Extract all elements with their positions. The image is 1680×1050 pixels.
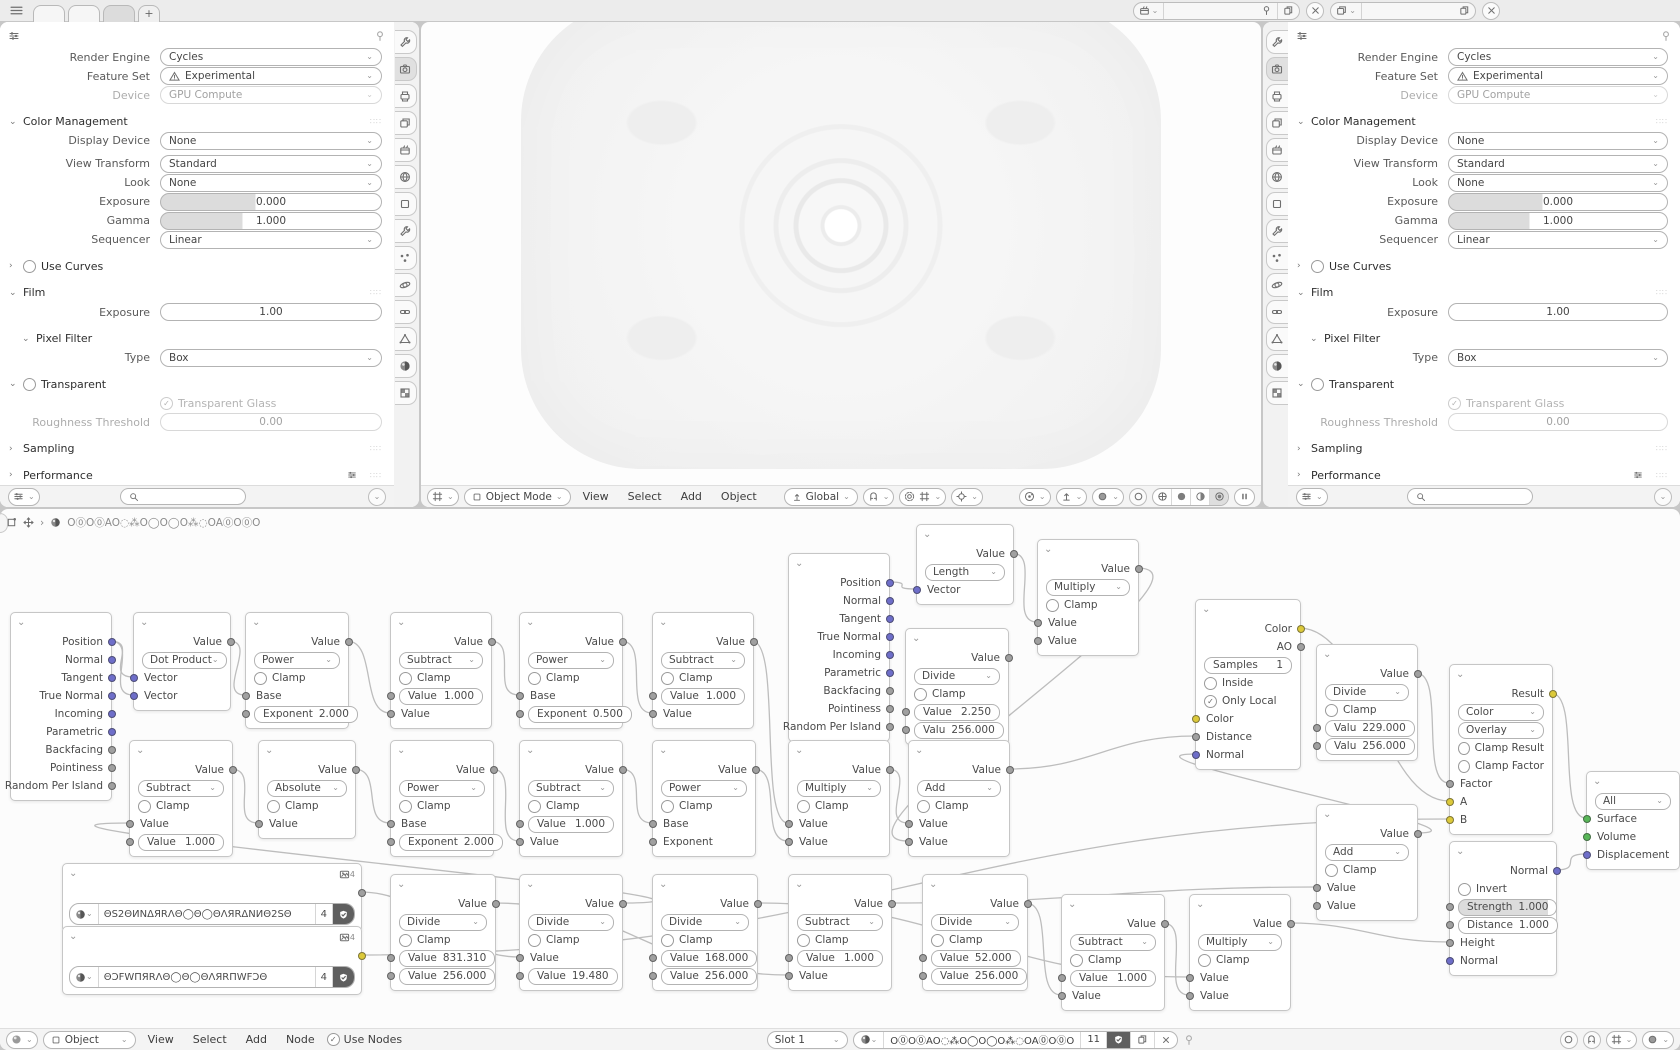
drag-grip[interactable]: ∷∷ [1656,444,1668,453]
input-socket[interactable] [130,674,138,682]
select-display-device[interactable]: None⌄ [160,132,382,150]
value-field[interactable]: Valu256.000 [1325,738,1415,755]
section-checkbox[interactable] [1311,260,1324,273]
pin-icon[interactable] [374,30,386,42]
xray-toggle[interactable] [1129,488,1147,506]
input-socket[interactable] [1034,619,1042,627]
output-socket[interactable] [619,766,627,774]
output-socket[interactable] [108,782,116,790]
properties-tab-particles[interactable] [1266,246,1288,270]
properties-tab-material[interactable] [1266,354,1288,378]
node-abs[interactable]: ⌄ValueAbsolute⌄ClampValue [258,740,356,839]
output-socket[interactable] [886,766,894,774]
checkbox-clamp[interactable] [254,672,267,685]
pin-icon[interactable] [1660,30,1672,42]
properties-tab-world[interactable] [1266,165,1288,189]
input-socket[interactable] [1186,992,1194,1000]
pivot-select[interactable]: ⌄ [951,488,983,506]
input-socket[interactable] [902,708,910,716]
checkbox-clamp[interactable] [1070,954,1083,967]
shading-material[interactable] [1191,489,1210,505]
node-addD[interactable]: ⌄ValueAdd⌄ClampValueValue [1316,804,1418,921]
input-socket[interactable] [1446,921,1454,929]
checkbox-clamp[interactable] [399,672,412,685]
workspace-tab[interactable] [103,5,135,22]
output-socket[interactable] [886,723,894,731]
input-socket[interactable] [1583,833,1591,841]
section-checkbox[interactable] [1311,378,1324,391]
menu-add[interactable]: Add [239,1033,274,1046]
select-view-transform[interactable]: Standard⌄ [1448,155,1668,173]
node-bump[interactable]: ⌄NormalInvertStrength1.000Distance1.000H… [1449,841,1557,976]
node-header[interactable]: ⌄ [1190,895,1290,915]
node-dot[interactable]: ⌄ValueDot Product⌄VectorVector [133,612,231,711]
menu-object[interactable]: Object [714,490,764,503]
node-header[interactable]: ⌄ [906,629,1008,649]
properties-tab-material[interactable] [395,354,417,378]
value-field[interactable]: Value256.000 [661,968,757,985]
node-header[interactable]: ⌄ [1038,540,1138,560]
value-field[interactable]: Value831.310 [399,950,495,967]
copy-icon[interactable] [1278,3,1299,19]
section-sampling[interactable]: ›Sampling∷∷ [1288,439,1680,459]
properties-tab-object[interactable] [1266,192,1288,216]
output-socket[interactable] [1024,900,1032,908]
output-socket[interactable] [886,597,894,605]
slider-exposure[interactable]: 0.000 [1448,193,1668,211]
output-socket[interactable] [352,766,360,774]
operation-select[interactable]: Multiply⌄ [797,780,881,797]
output-socket[interactable] [1006,766,1014,774]
operation-select[interactable]: Subtract⌄ [1070,934,1156,951]
node-header[interactable]: ⌄ [1450,842,1556,862]
image-users-count[interactable]: 4 [316,967,333,987]
checkbox-clamp[interactable] [931,934,944,947]
node-divT[interactable]: ⌄ValueDivide⌄ClampValue2.250Valu256.000 [905,628,1009,745]
value-field[interactable]: Value256.000 [931,968,1027,985]
properties-tab-constraints[interactable] [395,300,417,324]
output-socket[interactable] [619,900,627,908]
properties-tab-render[interactable] [395,57,417,81]
properties-tab-output[interactable] [395,84,417,108]
add-workspace-button[interactable]: + [138,5,160,22]
operation-select[interactable]: Length⌄ [925,564,1005,581]
operation-select[interactable]: Absolute⌄ [267,780,347,797]
input-socket[interactable] [785,820,793,828]
material-users-count[interactable]: 11 [1081,1032,1107,1048]
operation-select[interactable]: Power⌄ [254,652,340,669]
output-socket[interactable] [1297,625,1305,633]
input-socket[interactable] [242,710,250,718]
checkbox-clamp[interactable] [138,800,151,813]
input-socket[interactable] [1446,903,1454,911]
node-header[interactable]: ⌄ [789,741,889,761]
checkbox-clamp[interactable] [1325,704,1338,717]
input-socket[interactable] [1446,816,1454,824]
input-socket[interactable] [126,838,134,846]
node-subC[interactable]: ⌄ValueSubtract⌄ClampValue1.000Value [788,874,892,991]
node-header[interactable]: ⌄4 [63,864,361,884]
checkbox-clamp[interactable] [797,800,810,813]
node-geo1[interactable]: ⌄PositionNormalTangentTrue NormalIncomin… [10,612,112,801]
close-icon[interactable] [1482,2,1500,20]
input-socket[interactable] [919,972,927,980]
operation-select[interactable]: Add⌄ [917,780,1001,797]
input-socket[interactable] [126,820,134,828]
input-socket[interactable] [1058,992,1066,1000]
properties-tab-render[interactable] [1266,57,1288,81]
fake-user-shield-icon[interactable] [1107,1032,1131,1048]
input-socket[interactable] [905,820,913,828]
node-header[interactable]: ⌄ [391,741,493,761]
section-transparent[interactable]: ⌄Transparent [1288,374,1680,394]
image-name[interactable]: ΘƆϜWПЯRΛΘ◯Θ◯ΘΛЯRПWϜƆΘ [99,967,316,987]
properties-editor-icon[interactable] [1296,30,1308,42]
pin-icon[interactable] [1261,5,1272,16]
editor-type-button[interactable]: ⌄ [427,488,459,506]
input-socket[interactable] [1583,851,1591,859]
output-socket[interactable] [750,638,758,646]
operation-select[interactable]: Subtract⌄ [661,652,745,669]
orientation-select[interactable]: Global⌄ [784,488,858,506]
node-header[interactable]: ⌄ [246,613,348,633]
node-header[interactable]: ⌄ [1317,645,1417,665]
output-socket[interactable] [492,900,500,908]
operation-select[interactable]: Add⌄ [1325,844,1409,861]
select-look[interactable]: None⌄ [1448,174,1668,192]
checkbox-clamp[interactable] [661,800,674,813]
section-pixel-filter[interactable]: ⌄Pixel Filter [1288,329,1680,349]
input-socket[interactable] [516,954,524,962]
node-mix[interactable]: ⌄ResultColor⌄Overlay⌄Clamp ResultClamp F… [1449,664,1553,835]
value-field[interactable]: Exponent2.000 [254,706,358,723]
input-socket[interactable] [1186,974,1194,982]
number-field-roughness-threshold[interactable]: 0.00 [1448,413,1668,431]
checkbox-clamp[interactable] [528,672,541,685]
image-users-count[interactable]: 4 [316,904,333,924]
copy-icon[interactable] [1131,1032,1155,1048]
value-field[interactable]: Samples1 [1204,657,1292,674]
properties-tab-output[interactable] [1266,84,1288,108]
input-socket[interactable] [1313,724,1321,732]
input-socket[interactable] [1034,637,1042,645]
node-header[interactable]: ⌄ [520,741,622,761]
input-socket[interactable] [649,972,657,980]
editor-type-button[interactable]: ⌄ [6,1031,38,1049]
output-socket[interactable] [1010,550,1018,558]
input-socket[interactable] [1583,815,1591,823]
use-nodes-checkbox[interactable]: ✓Use Nodes [327,1033,403,1046]
menu-add[interactable]: Add [674,490,709,503]
input-socket[interactable] [387,838,395,846]
image-name[interactable]: ΘS2ΘИNΔЯRΛΘ◯Θ◯ΘΛЯRΔNИΘ2SΘ [99,904,316,924]
input-socket[interactable] [1313,884,1321,892]
checkbox-clamp[interactable] [1046,599,1059,612]
select-type[interactable]: Box⌄ [1448,349,1668,367]
node-header[interactable]: ⌄ [789,875,891,895]
overlays-dropdown[interactable]: ⌄ [1092,488,1124,506]
workspace-tab[interactable] [33,5,65,22]
operation-select[interactable]: Power⌄ [399,780,485,797]
drag-grip[interactable]: ∷∷ [370,444,382,453]
input-socket[interactable] [1058,974,1066,982]
copy-icon[interactable] [1459,5,1470,16]
select-render-engine[interactable]: Cycles⌄ [160,48,382,66]
properties-tab-scene[interactable] [1266,138,1288,162]
select-display-device[interactable]: None⌄ [1448,132,1668,150]
node-divC4[interactable]: ⌄ValueDivide⌄ClampValue52.000Value256.00… [922,874,1028,991]
select-view-transform[interactable]: Standard⌄ [160,155,382,173]
slider-gamma[interactable]: 1.000 [1448,212,1668,230]
slider-exposure[interactable]: 0.000 [160,193,382,211]
output-socket[interactable] [886,669,894,677]
slot-select[interactable]: Slot 1⌄ [767,1031,848,1049]
output-socket[interactable] [108,674,116,682]
output-socket[interactable] [108,764,116,772]
node-mulT[interactable]: ⌄ValueMultiply⌄ClampValueValue [1037,539,1139,656]
output-socket[interactable] [108,710,116,718]
node-header[interactable]: ⌄ [391,613,491,633]
checkbox-clamp-factor[interactable] [1458,760,1470,773]
output-socket[interactable] [1287,920,1295,928]
output-socket[interactable] [1005,654,1013,662]
node-mulB[interactable]: ⌄ValueMultiply⌄ClampValueValue [788,740,890,857]
section-use-curves[interactable]: ›Use Curves [1288,256,1680,276]
select-look[interactable]: None⌄ [160,174,382,192]
checkbox-clamp[interactable] [528,934,541,947]
node-divC1[interactable]: ⌄ValueDivide⌄ClampValue831.310Value256.0… [390,874,496,991]
operation-select[interactable]: Power⌄ [661,780,747,797]
node-header[interactable]: ⌄ [1450,665,1552,685]
properties-tab-particles[interactable] [395,246,417,270]
shader-node-editor[interactable]: ⌄PositionNormalTangentTrue NormalIncomin… [0,509,1680,1050]
select-render-engine[interactable]: Cycles⌄ [1448,48,1668,66]
operation-select[interactable]: All⌄ [1595,793,1671,810]
operation-select[interactable]: Overlay⌄ [1458,722,1544,739]
number-field-exposure[interactable]: 1.00 [1448,303,1668,321]
input-socket[interactable] [1446,939,1454,947]
input-socket[interactable] [649,838,657,846]
snap-toggle-ghost[interactable] [1560,1031,1578,1049]
node-mulC[interactable]: ⌄ValueMultiply⌄ClampValueValue [1189,894,1291,1011]
output-socket[interactable] [358,889,366,897]
properties-tab-object[interactable] [395,192,417,216]
select-type[interactable]: Box⌄ [160,349,382,367]
node-out[interactable]: ⌄All⌄SurfaceVolumeDisplacement [1586,771,1680,870]
drag-grip[interactable]: ∷∷ [1656,471,1668,480]
value-field[interactable]: Value256.000 [399,968,495,985]
output-socket[interactable] [488,638,496,646]
checkbox-clamp[interactable] [917,800,930,813]
search-input[interactable] [1407,488,1533,505]
pin-icon[interactable] [1183,1034,1195,1046]
operation-select[interactable]: Divide⌄ [1325,684,1409,701]
properties-tab-constraints[interactable] [1266,300,1288,324]
section-performance[interactable]: ›Performance∷∷ [0,466,394,486]
menu-view[interactable]: View [141,1033,181,1046]
section-performance[interactable]: ›Performance∷∷ [1288,466,1680,486]
checkbox-clamp[interactable] [1198,954,1211,967]
output-socket[interactable] [108,638,116,646]
checkbox-clamp-result[interactable] [1458,742,1470,755]
number-field-exposure[interactable]: 1.00 [160,303,382,321]
value-field[interactable]: Valu256.000 [914,722,1004,739]
node-pow2[interactable]: ⌄ValuePower⌄ClampBaseExponent0.500 [519,612,623,729]
input-socket[interactable] [1192,751,1200,759]
properties-tab-tool[interactable] [395,30,417,54]
select-device[interactable]: GPU Compute⌄ [160,86,382,104]
operation-select[interactable]: Divide⌄ [914,668,1000,685]
output-socket[interactable] [490,766,498,774]
filter-button[interactable]: ⌄ [1654,488,1672,506]
value-field[interactable]: Valu229.000 [1325,720,1415,737]
output-socket[interactable] [108,656,116,664]
node-header[interactable]: ⌄ [909,741,1009,761]
node-subB2[interactable]: ⌄ValueSubtract⌄ClampValue1.000Value [519,740,623,857]
operation-select[interactable]: Subtract⌄ [528,780,614,797]
checkbox-clamp[interactable] [399,800,412,813]
properties-tab-physics[interactable] [1266,273,1288,297]
output-socket[interactable] [886,705,894,713]
input-socket[interactable] [1446,957,1454,965]
output-socket[interactable] [1135,565,1143,573]
properties-tab-world[interactable] [395,165,417,189]
drag-grip[interactable]: ∷∷ [370,288,382,297]
checkbox-clamp[interactable] [267,800,280,813]
node-header[interactable]: ⌄ [520,875,622,895]
value-field[interactable]: Exponent0.500 [528,706,632,723]
snap-target-select[interactable]: ⌄ [1606,1031,1638,1049]
properties-tab-viewlayer[interactable] [395,111,417,135]
mode-select[interactable]: Object Mode⌄ [464,488,571,506]
node-header[interactable]: ⌄ [259,741,355,761]
output-socket[interactable] [108,728,116,736]
properties-tab-tool[interactable] [1266,30,1288,54]
checkbox-inside[interactable] [1204,677,1217,690]
node-header[interactable]: ⌄ [134,613,230,633]
output-socket[interactable] [1414,670,1422,678]
node-len[interactable]: ⌄ValueLength⌄Vector [916,524,1014,605]
node-ao[interactable]: ⌄ColorAOSamples1Inside✓Only LocalColorDi… [1195,599,1301,770]
value-field[interactable]: Value52.000 [931,950,1021,967]
operation-select[interactable]: Divide⌄ [661,914,749,931]
node-divC2[interactable]: ⌄ValueDivide⌄ClampValueValue19.480 [519,874,623,991]
gizmos-dropdown[interactable]: ⌄ [1056,488,1088,506]
drag-grip[interactable]: ∷∷ [1656,117,1668,126]
output-socket[interactable] [886,687,894,695]
node-imgA[interactable]: ⌄4⌄ΘS2ΘИNΔЯRΛΘ◯Θ◯ΘΛЯRΔNИΘ2SΘ4 [62,863,362,932]
value-field[interactable]: Value1.000 [399,688,483,705]
properties-tab-texture[interactable] [1266,381,1288,405]
output-socket[interactable] [108,746,116,754]
node-header[interactable]: ⌄4 [63,927,361,947]
viewlayer-icon[interactable]: ⌄ [1331,3,1362,19]
output-socket[interactable] [1553,867,1561,875]
output-socket[interactable] [886,615,894,623]
input-socket[interactable] [785,972,793,980]
node-powB1[interactable]: ⌄ValuePower⌄ClampBaseExponent2.000 [390,740,494,857]
node-header[interactable]: ⌄ [130,741,232,761]
value-field[interactable]: Value1.000 [797,950,883,967]
select-sequencer[interactable]: Linear⌄ [1448,231,1668,249]
shading-solid[interactable] [1172,489,1191,505]
slider-gamma[interactable]: 1.000 [160,212,382,230]
select-feature-set[interactable]: Experimental⌄ [1448,67,1668,85]
snap-magnet-icon[interactable] [1583,1031,1601,1049]
checkbox-only-local[interactable]: ✓ [1204,695,1217,708]
section-film[interactable]: ⌄Film∷∷ [1288,283,1680,303]
proportional-edit[interactable]: ⌄ [899,488,946,506]
checkbox-clamp[interactable] [661,672,674,685]
operation-select[interactable]: Color⌄ [1458,704,1544,721]
workspace-tab[interactable] [68,5,100,22]
drag-grip[interactable]: ∷∷ [370,117,382,126]
node-header[interactable]: ⌄ [917,525,1013,545]
select-sequencer[interactable]: Linear⌄ [160,231,382,249]
checkbox-clamp[interactable] [528,800,541,813]
node-canvas[interactable]: ⌄PositionNormalTangentTrue NormalIncomin… [0,509,1680,1029]
properties-tab-modifiers[interactable] [1266,219,1288,243]
fake-user-shield-icon[interactable] [333,904,354,924]
input-socket[interactable] [785,838,793,846]
menu-node[interactable]: Node [279,1033,322,1046]
output-socket[interactable] [1297,643,1305,651]
app-menu-icon[interactable] [10,4,23,17]
value-field[interactable]: Value1.000 [138,834,224,851]
output-socket[interactable] [1549,690,1557,698]
output-socket[interactable] [1161,920,1169,928]
node-header[interactable]: ⌄ [789,554,889,574]
section-checkbox[interactable] [23,260,36,273]
section-sampling[interactable]: ›Sampling∷∷ [0,439,394,459]
viewlayer-name-input[interactable] [1367,4,1457,18]
input-socket[interactable] [785,954,793,962]
operation-select[interactable]: Multiply⌄ [1046,579,1130,596]
section-checkbox[interactable] [23,378,36,391]
node-subB1[interactable]: ⌄ValueSubtract⌄ClampValueValue1.000 [129,740,233,857]
input-socket[interactable] [649,710,657,718]
output-socket[interactable] [1414,830,1422,838]
node-header[interactable]: ⌄ [391,875,495,895]
viewport-3d[interactable]: ⌄Object Mode⌄ViewSelectAddObjectGlobal⌄⌄… [421,22,1261,507]
output-socket[interactable] [229,766,237,774]
visibility-dropdown[interactable]: ⌄ [1019,488,1051,506]
output-socket[interactable] [358,952,366,960]
operation-select[interactable]: Multiply⌄ [1198,934,1282,951]
output-socket[interactable] [754,900,762,908]
material-name[interactable]: O⓪O⓪AO◌⁂O◯O◯O⁂◌OA⓪O⓪O [884,1032,1081,1048]
output-socket[interactable] [619,638,627,646]
input-socket[interactable] [516,692,524,700]
select-feature-set[interactable]: Experimental⌄ [160,67,382,85]
operation-select[interactable]: Subtract⌄ [138,780,224,797]
scene-selector[interactable]: ⌄ [1133,2,1301,20]
input-socket[interactable] [1313,902,1321,910]
search-input[interactable] [120,488,246,505]
properties-tab-viewlayer[interactable] [1266,111,1288,135]
input-socket[interactable] [1192,733,1200,741]
drag-grip[interactable]: ∷∷ [1656,288,1668,297]
input-socket[interactable] [1446,780,1454,788]
value-field[interactable]: Value168.000 [661,950,757,967]
shading-rendered[interactable] [1210,489,1228,505]
value-field[interactable]: Strength1.000 [1458,899,1557,916]
node-sub1[interactable]: ⌄ValueSubtract⌄ClampValue1.000Value [390,612,492,729]
node-header[interactable]: ⌄ [653,741,755,761]
material-browse-button[interactable]: ⌄ [854,1032,885,1048]
node-divB[interactable]: ⌄ValueDivide⌄ClampValu229.000Valu256.000 [1316,644,1418,761]
input-socket[interactable] [1192,715,1200,723]
